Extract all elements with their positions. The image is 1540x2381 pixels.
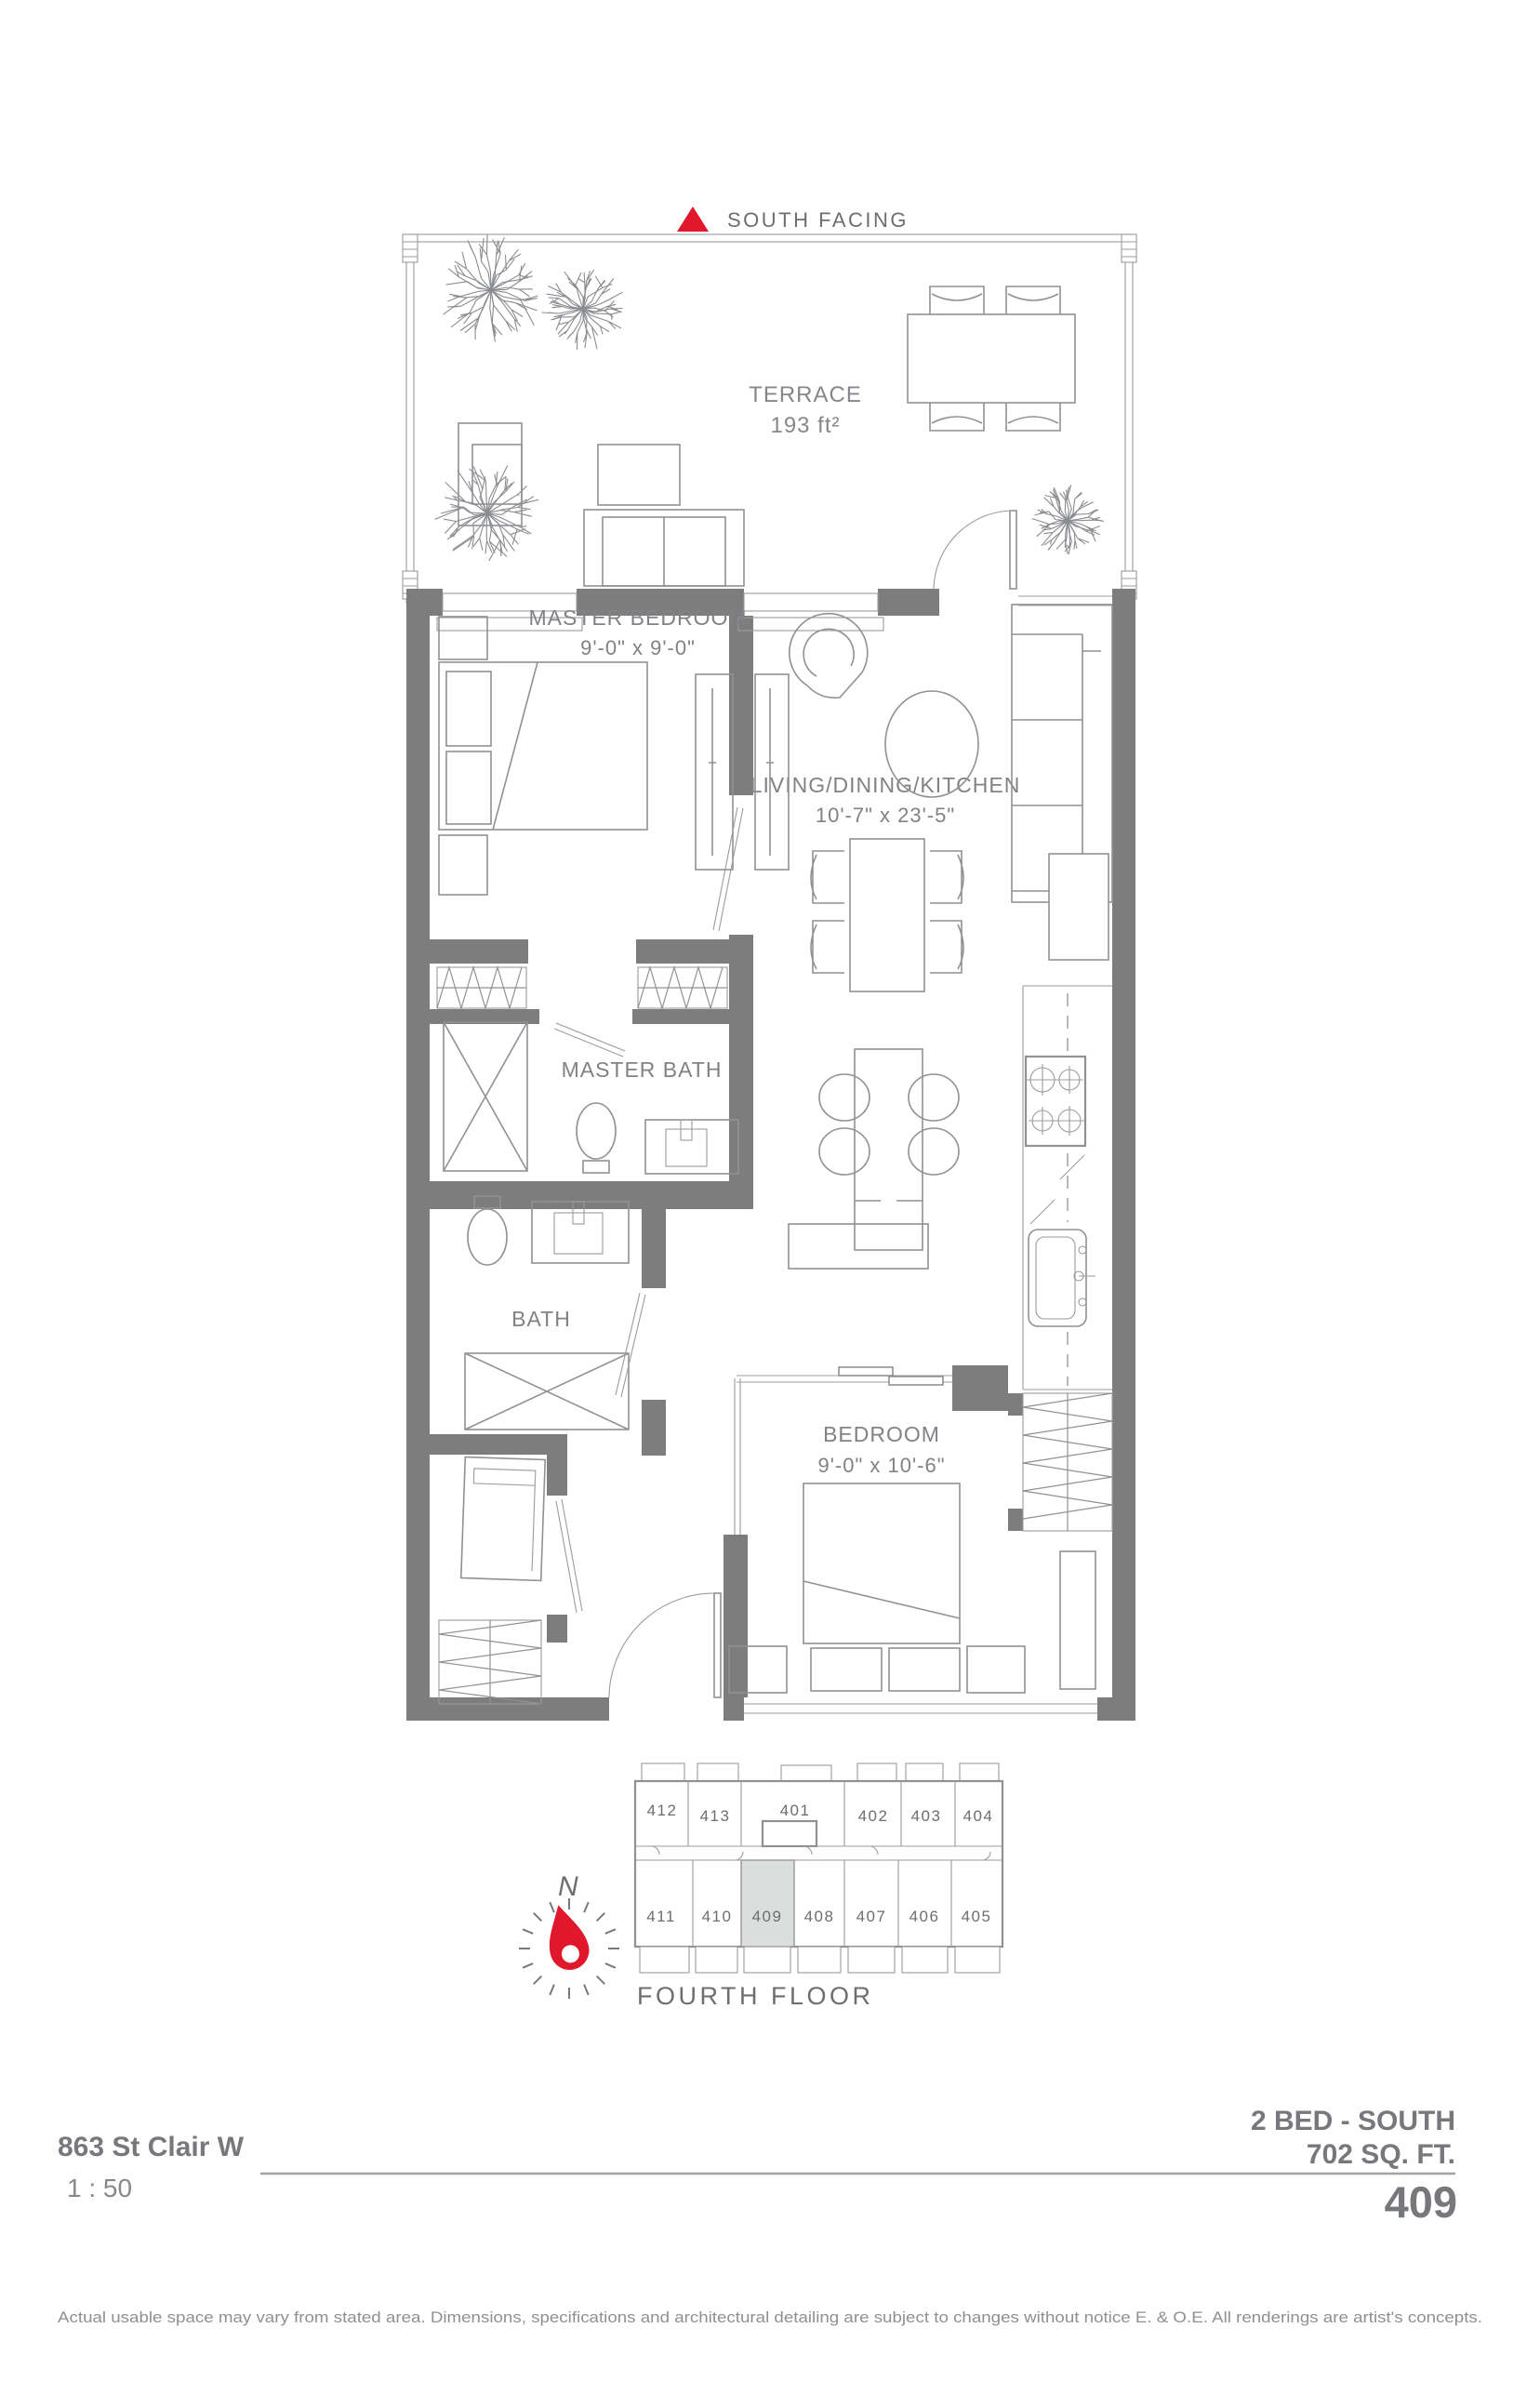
south-facing-triangle-icon [677, 206, 709, 232]
bedroom-dresser [1060, 1551, 1095, 1689]
keyplan-corridor [635, 1846, 1002, 1860]
terrace: TERRACE 193 ft² [403, 234, 1136, 603]
laundry-door [556, 1499, 582, 1613]
bathtub [465, 1353, 629, 1430]
terrace-door [934, 511, 1016, 589]
tree [444, 234, 538, 342]
keyplan-unit-405: 405 [962, 1908, 992, 1925]
keyplan-unit-402: 402 [858, 1807, 889, 1825]
master-bedroom-label: MASTER BEDROOM [528, 605, 747, 630]
key-plan: 412 413 401 402 403 404 411 410 409 408 … [635, 1763, 1002, 2010]
shower [444, 1022, 527, 1171]
keyplan-unit-413: 413 [700, 1807, 731, 1825]
keyplan-elevator-core [763, 1821, 816, 1846]
tree [542, 270, 623, 350]
bedroom-closet [1023, 1393, 1112, 1531]
window-bedroom [744, 1704, 1097, 1713]
keyplan-balconies-top [642, 1763, 999, 1781]
keyplan-balconies-bottom [640, 1947, 1000, 1973]
terrace-rail-right [1125, 234, 1133, 603]
bedroom-partition [735, 1367, 952, 1535]
unit-area-label: 702 SQ. FT. [1307, 2139, 1455, 2170]
kitchen-counter [1023, 854, 1112, 1390]
keyplan-unit-410: 410 [702, 1908, 733, 1925]
terrace-dining-set [908, 286, 1075, 431]
bath-label: BATH [511, 1307, 571, 1331]
stove [1026, 1057, 1085, 1146]
closet-left [437, 967, 526, 1008]
lounge-chair [790, 614, 868, 698]
keyplan-bottom-dividers [693, 1860, 951, 1947]
bedroom: BEDROOM 9'-0" x 10'-6" [729, 1367, 1112, 1693]
floorplan-page: SOUTH FACING [0, 0, 1540, 2381]
closet-corridor [437, 967, 727, 1008]
address-label: 863 St Clair W [58, 2132, 245, 2162]
terrace-rail-top [406, 234, 1133, 242]
tree [435, 465, 538, 561]
living-dining-kitchen: LIVING/DINING/KITCHEN 10'-7" x 23'-5" [750, 605, 1112, 1390]
bath-door [616, 1293, 645, 1397]
master-bath-door [554, 1023, 625, 1057]
kitchen-sink [1029, 1230, 1095, 1326]
bedroom-bed [729, 1483, 1025, 1693]
bedroom-label: BEDROOM [823, 1422, 940, 1446]
bedroom-dims: 9'-0" x 10'-6" [817, 1454, 945, 1477]
tree [1032, 485, 1104, 554]
unit-number-label: 409 [1385, 2177, 1457, 2227]
floor-label: FOURTH FLOOR [637, 1982, 874, 2010]
south-facing-label: SOUTH FACING [727, 208, 909, 232]
keyplan-unit-407: 407 [856, 1908, 887, 1925]
keyplan-door-arcs [651, 1846, 990, 1860]
living-label: LIVING/DINING/KITCHEN [750, 773, 1021, 797]
entry-closet [439, 1620, 541, 1704]
master-toilet [577, 1103, 616, 1173]
media-unit [755, 674, 789, 870]
keyplan-unit-403: 403 [911, 1807, 942, 1825]
closet-right [638, 967, 727, 1008]
entry-door [609, 1593, 721, 1697]
dining-table [811, 839, 963, 991]
terrace-coffee-table [598, 445, 680, 505]
hall-bench [789, 1224, 928, 1269]
terrace-sofa [584, 510, 744, 586]
keyplan-unit-411: 411 [646, 1908, 676, 1925]
compass: N [519, 1871, 619, 1999]
master-bath-label: MASTER BATH [562, 1057, 723, 1082]
bath: BATH [465, 1196, 645, 1430]
keyplan-unit-404: 404 [963, 1807, 994, 1825]
keyplan-unit-408: 408 [804, 1908, 835, 1925]
keyplan-unit-409-highlight [741, 1860, 794, 1947]
bath-vanity [532, 1202, 629, 1263]
unit-type-label: 2 BED - SOUTH [1251, 2106, 1455, 2136]
dishwasher-marks [1030, 1155, 1084, 1224]
keyplan-unit-409: 409 [752, 1908, 783, 1925]
master-vanity [645, 1120, 738, 1174]
window-living [738, 593, 883, 631]
footer: 863 St Clair W 1 : 50 2 BED - SOUTH 702 … [58, 2106, 1482, 2326]
fridge [1049, 854, 1109, 960]
north-label: N [558, 1871, 578, 1902]
master-wardrobe [696, 674, 733, 870]
terrace-area-label: 193 ft² [770, 413, 840, 438]
south-facing-marker: SOUTH FACING [677, 206, 909, 232]
master-bedroom: MASTER BEDROOM 9'-0" x 9'-0" [439, 605, 748, 931]
keyplan-unit-401: 401 [780, 1802, 811, 1819]
terrace-label: TERRACE [749, 382, 862, 407]
living-dims: 10'-7" x 23'-5" [816, 804, 955, 827]
walls [406, 589, 1135, 1721]
master-bedroom-dims: 9'-0" x 9'-0" [580, 636, 696, 659]
disclaimer-text: Actual usable space may vary from stated… [58, 2308, 1482, 2326]
master-bath: MASTER BATH [444, 1022, 738, 1174]
keyplan-unit-406: 406 [909, 1908, 940, 1925]
scale-label: 1 : 50 [67, 2174, 132, 2202]
keyplan-unit-412: 412 [647, 1802, 678, 1819]
washer [461, 1457, 545, 1581]
terrace-rail-left [406, 234, 414, 603]
kitchen-island [819, 1049, 959, 1250]
windows [437, 593, 1112, 1713]
